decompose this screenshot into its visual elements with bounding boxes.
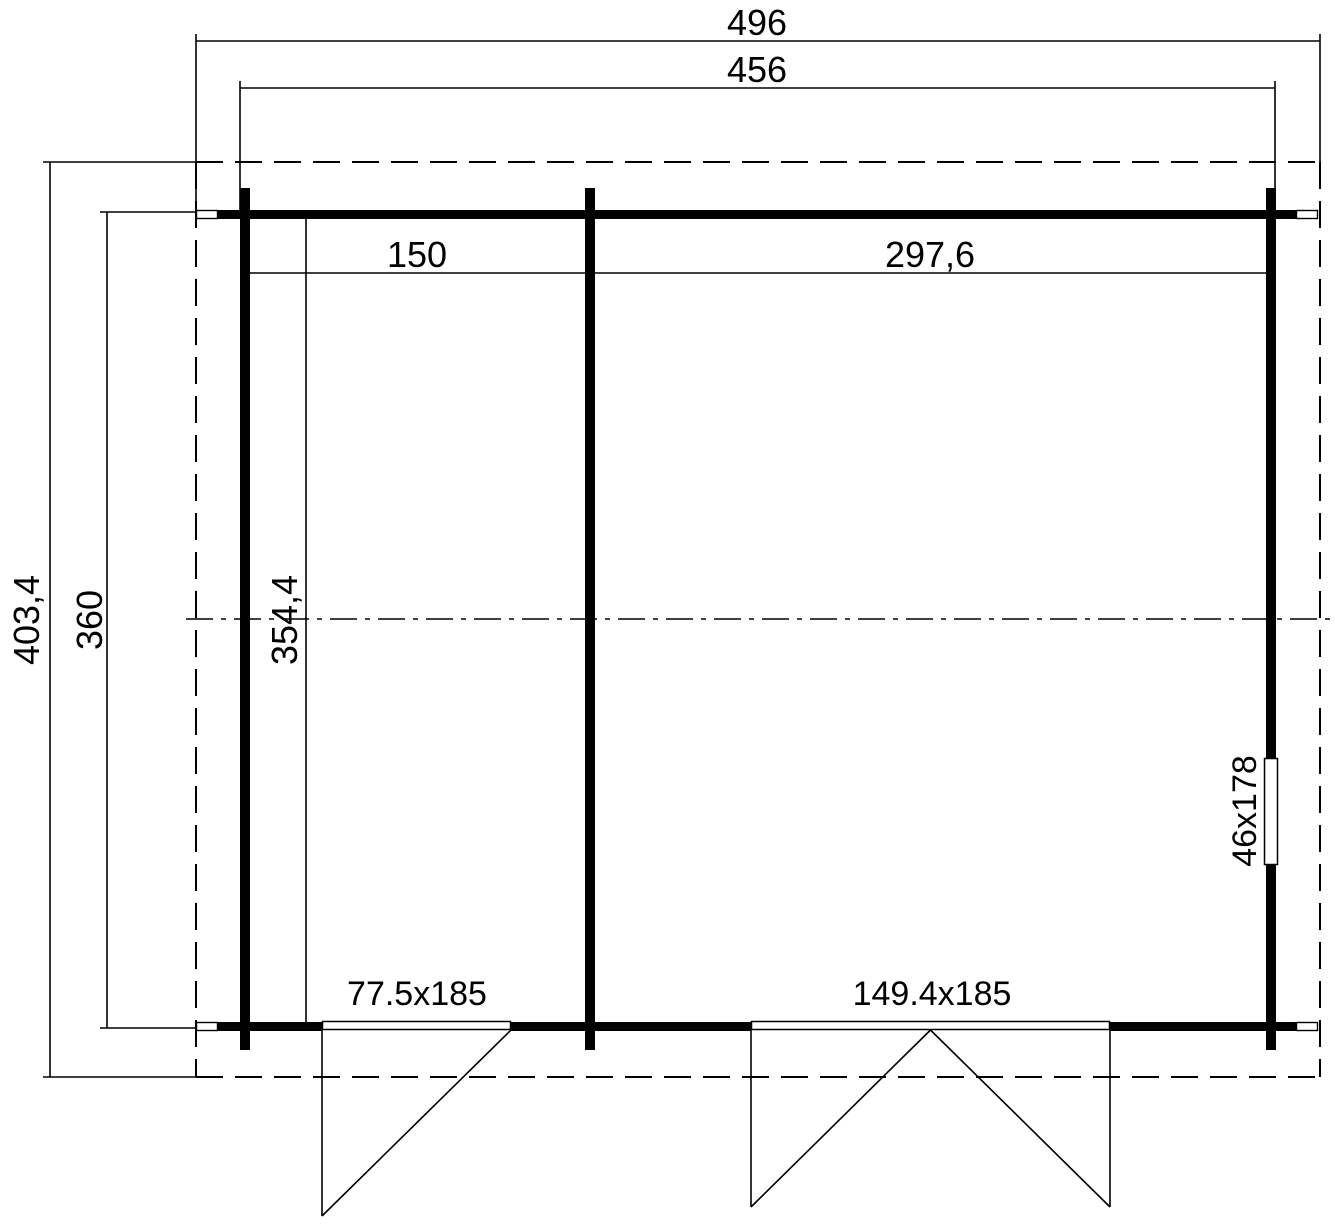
size-label-double-door: 149.4x185 [853,975,1012,1013]
dim-label-room-left-width: 150 [387,234,447,275]
left-door-panel [323,1022,511,1030]
size-label-left-door: 77.5x185 [347,975,487,1013]
log-end-top-left [197,211,218,219]
dim-label-wall-width: 456 [727,49,787,90]
double-door [751,1022,1110,1208]
dimension-labels: 496 456 150 297,6 403,4 360 354,4 46x178… [6,2,1264,1013]
dim-label-wall-depth: 360 [69,590,110,650]
log-end-bottom-right [1297,1023,1318,1031]
double-door-left-leaf-arc [751,1030,931,1207]
left-door-swing-arc [322,1030,511,1216]
floor-plan: 496 456 150 297,6 403,4 360 354,4 46x178… [0,0,1335,1231]
log-ends [197,211,1318,1031]
dim-label-room-right-width: 297,6 [885,234,975,275]
wall-bottom-middle-segment [511,1022,751,1031]
wall-bottom-right-segment [1110,1022,1296,1031]
dimension-lines [43,34,1320,1077]
left-door [322,1022,511,1217]
wall-top [218,210,1296,219]
wall-bottom-left-segment [218,1022,322,1031]
log-end-bottom-left [197,1023,218,1031]
wall-middle [585,188,595,1050]
floor-plan-svg: 496 456 150 297,6 403,4 360 354,4 46x178… [0,0,1335,1231]
size-label-window: 46x178 [1226,755,1264,867]
double-door-panel [752,1022,1110,1030]
wall-right-upper [1266,188,1276,758]
double-door-right-leaf-arc [931,1030,1111,1207]
wall-left [240,188,250,1050]
dim-label-roof-width: 496 [727,2,787,43]
dim-label-interior-depth: 354,4 [264,575,305,665]
dim-label-roof-depth: 403,4 [6,575,47,665]
log-end-top-right [1297,211,1318,219]
window [1265,759,1278,865]
